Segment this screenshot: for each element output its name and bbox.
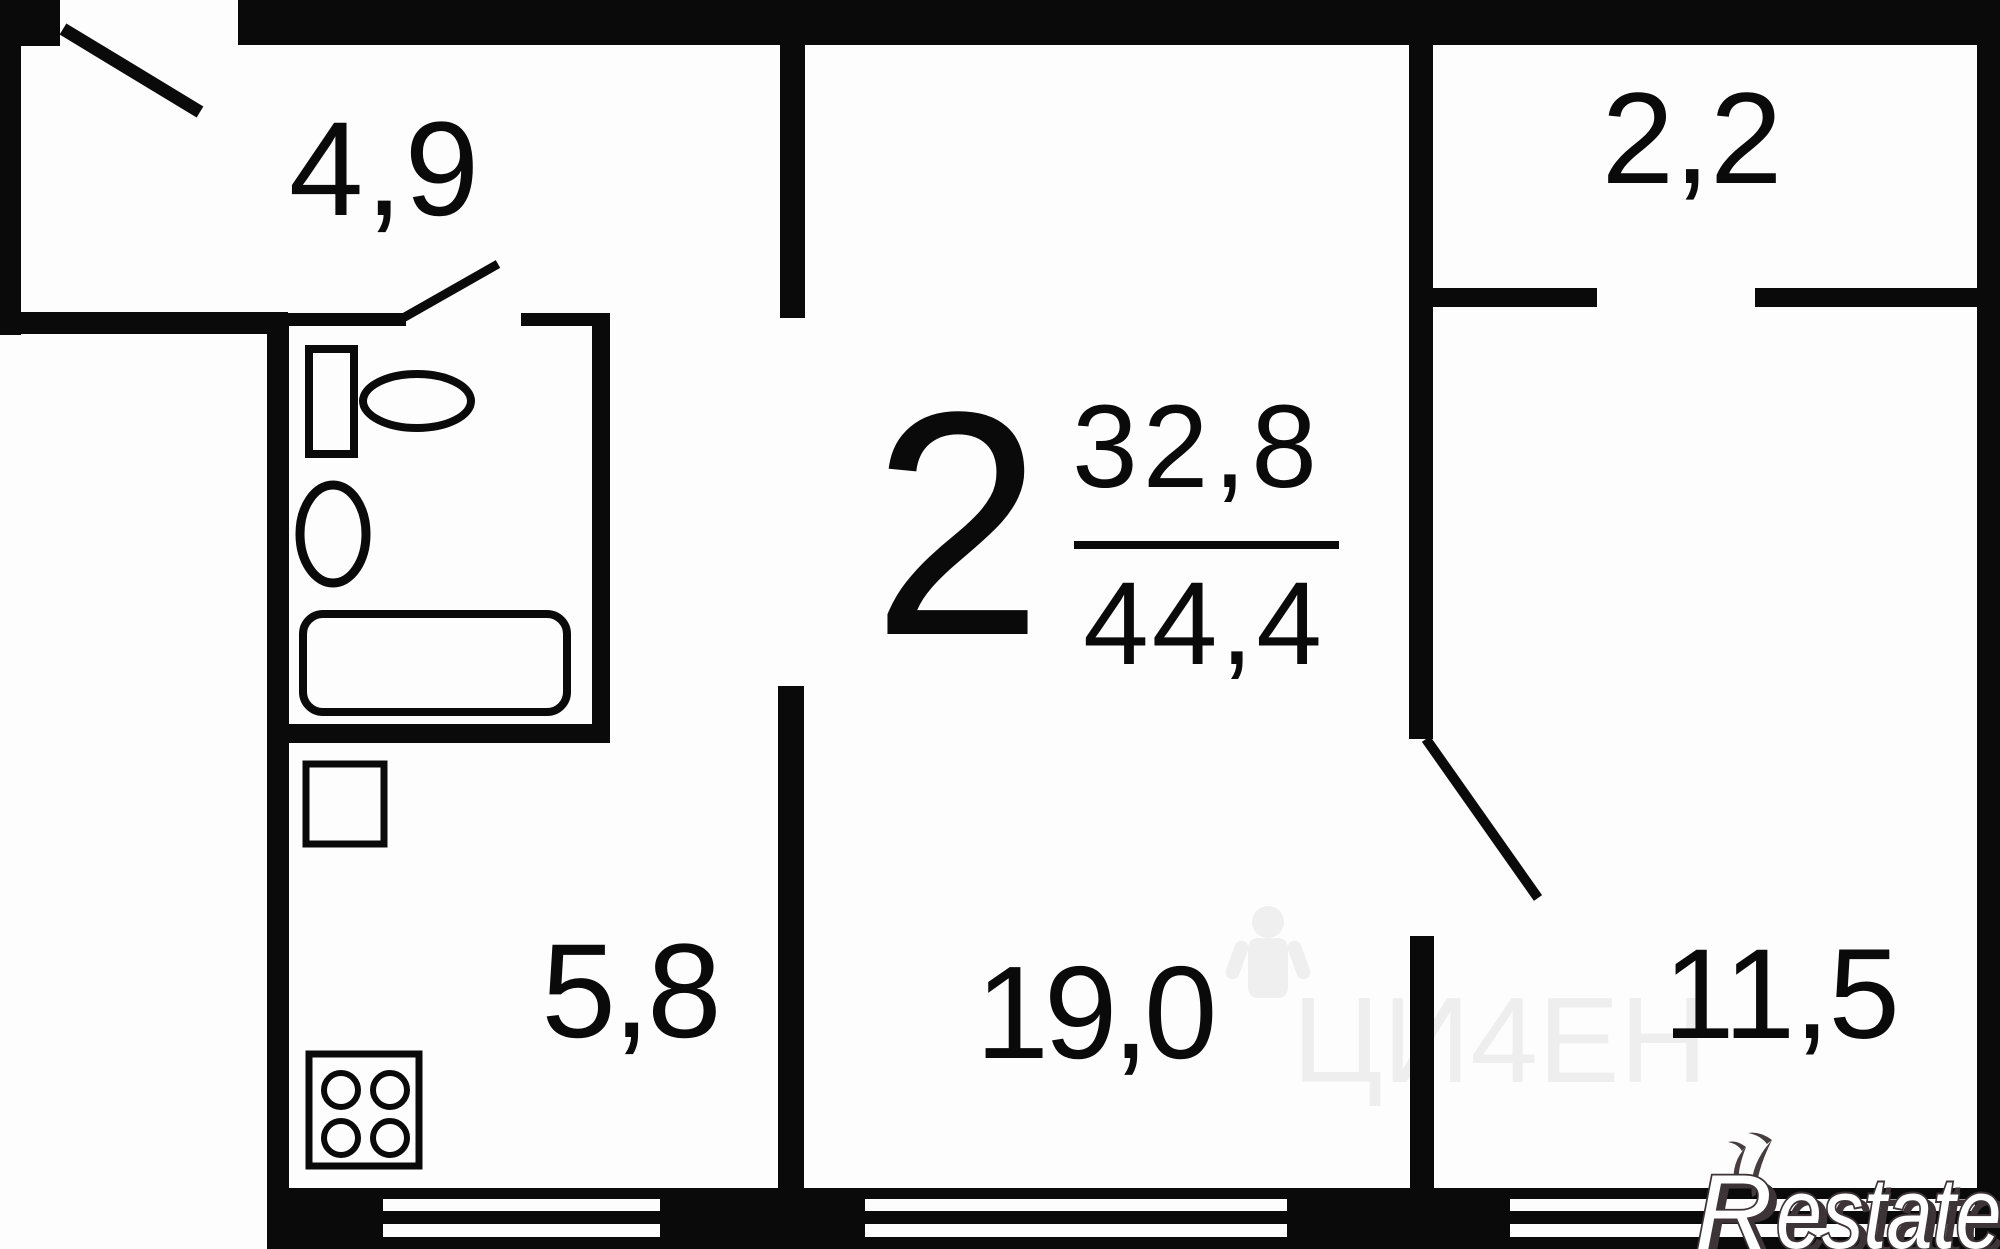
svg-text:5,8: 5,8 <box>541 917 718 1066</box>
svg-text:11,5: 11,5 <box>1663 923 1899 1066</box>
svg-text:R: R <box>1695 1152 1772 1249</box>
svg-text:44,4: 44,4 <box>1083 558 1325 690</box>
svg-text:ЦИ4ЕН: ЦИ4ЕН <box>1292 972 1707 1108</box>
svg-text:4,9: 4,9 <box>289 95 481 244</box>
svg-text:2,2: 2,2 <box>1602 65 1783 211</box>
svg-text:estate: estate <box>1776 1156 2000 1249</box>
svg-text:32,8: 32,8 <box>1072 381 1322 513</box>
svg-text:19,0: 19,0 <box>976 939 1213 1086</box>
svg-text:2: 2 <box>872 345 1043 702</box>
